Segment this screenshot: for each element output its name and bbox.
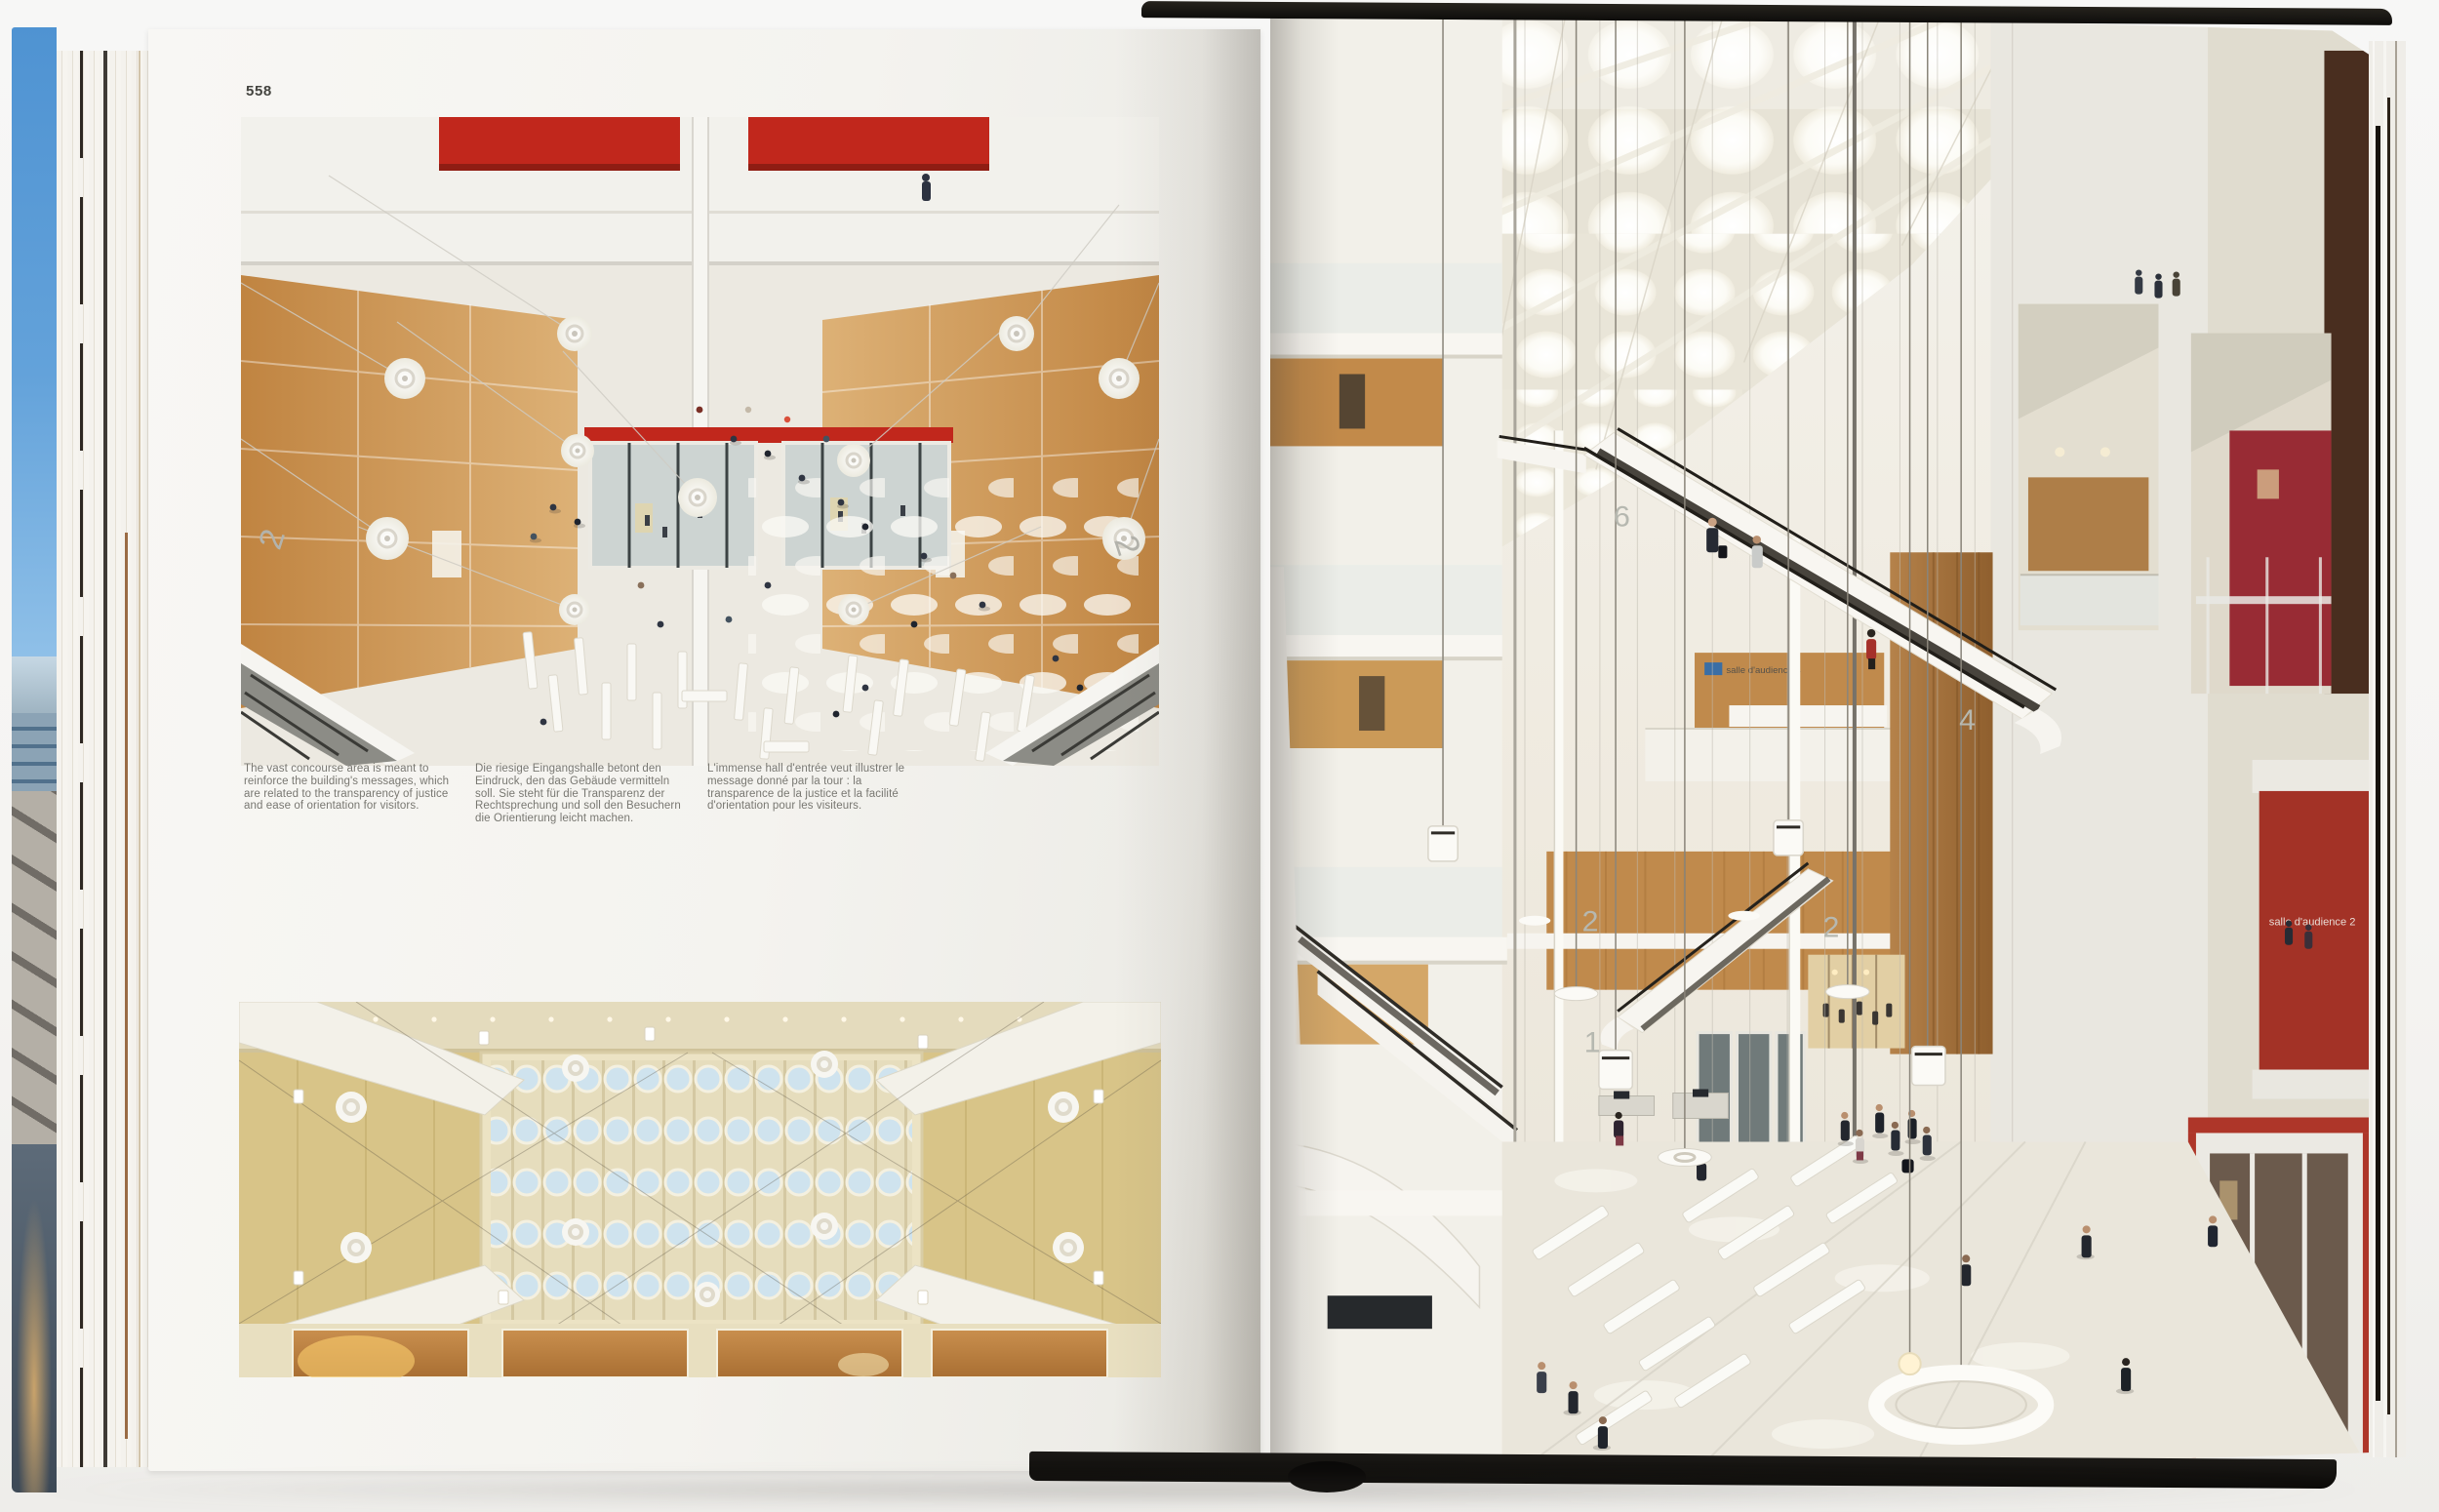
page-edge-gray-line [2395, 41, 2397, 1457]
sliver-haze [12, 657, 57, 713]
label-level4: 4 [1959, 704, 1976, 736]
page-edge-ink-line [103, 51, 107, 1467]
meeting-room-panels [1698, 1033, 1804, 1146]
gutter-shadow-left [1114, 29, 1260, 1471]
photo-concourse-aerial: 2 2 [241, 117, 1159, 766]
info-screen [1328, 1295, 1432, 1329]
sliver-building-railings [12, 713, 57, 791]
book-drop-shadow [29, 1477, 2371, 1502]
page-edges-right [2369, 41, 2406, 1457]
underlying-page-sliver [12, 27, 57, 1492]
page-edge-white-line [2373, 41, 2375, 1457]
page-edge-ink-line [80, 51, 83, 1467]
page-number: 558 [246, 83, 272, 99]
sliver-street [12, 1144, 57, 1492]
caption-german: Die riesige Eingangshalle betont den Ein… [475, 763, 688, 825]
photo-skylight-upview [239, 1002, 1161, 1377]
label-level2-left: 2 [1582, 906, 1599, 938]
caption-english: The vast concourse area is meant to rein… [244, 763, 457, 813]
bottom-wood-panels [239, 1324, 1161, 1377]
page-edges-left [57, 51, 148, 1467]
sliver-sky [12, 27, 57, 657]
gutter-shadow-right [1270, 12, 1339, 1473]
label-level2-right: 2 [1823, 912, 1840, 944]
sliver-building-facade [12, 791, 57, 1144]
walkway-person [922, 174, 931, 201]
left-page: 558 [148, 29, 1260, 1471]
book-spread-photo: 558 [0, 0, 2439, 1512]
page-edge-cream-line [139, 51, 140, 1467]
caption-french: L'immense hall d'entrée veut illustrer l… [707, 763, 920, 813]
page-edge-dark-line [2376, 126, 2380, 1401]
right-page: salle d'audience 2 [1270, 12, 2371, 1473]
label-level1: 1 [1584, 1027, 1601, 1059]
page-edge-wood-line [125, 533, 128, 1439]
photo-atrium: salle d'audience 2 [1270, 12, 2371, 1473]
page-edge-dark-line [2387, 98, 2390, 1414]
page-edge-white-line [2383, 41, 2386, 1457]
label-level6: 6 [1614, 500, 1630, 533]
